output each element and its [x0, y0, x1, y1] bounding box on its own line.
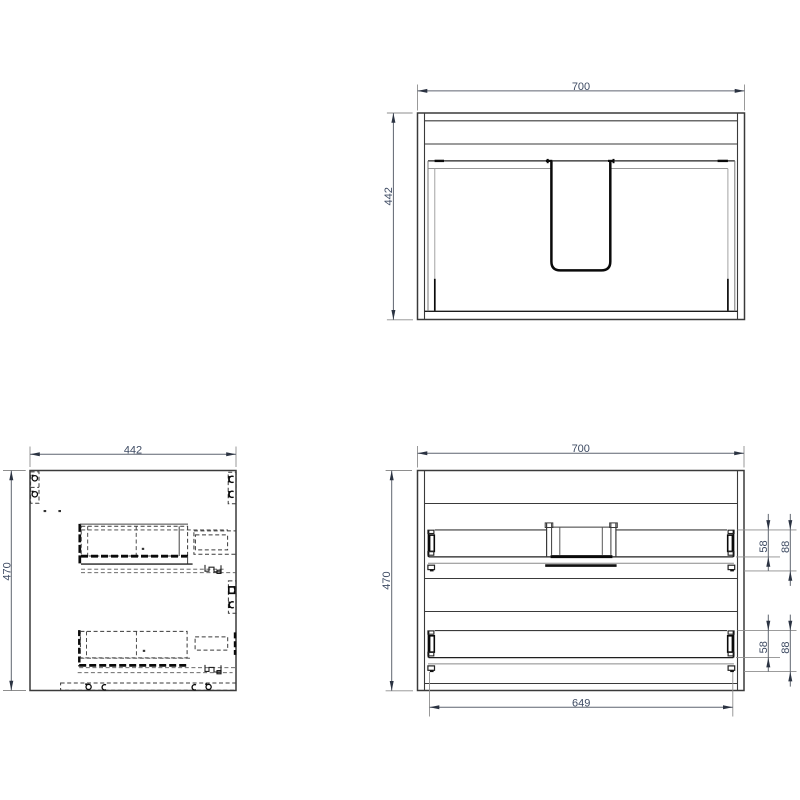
- svg-text:442: 442: [124, 444, 142, 456]
- svg-text:700: 700: [572, 81, 590, 93]
- svg-text:700: 700: [572, 443, 590, 455]
- svg-text:470: 470: [1, 562, 13, 580]
- svg-text:649: 649: [572, 697, 590, 709]
- svg-text:470: 470: [381, 571, 393, 589]
- svg-text:58: 58: [758, 641, 770, 653]
- svg-text:58: 58: [758, 540, 770, 552]
- svg-text:442: 442: [383, 187, 395, 205]
- svg-text:88: 88: [780, 641, 792, 653]
- svg-text:88: 88: [780, 541, 792, 553]
